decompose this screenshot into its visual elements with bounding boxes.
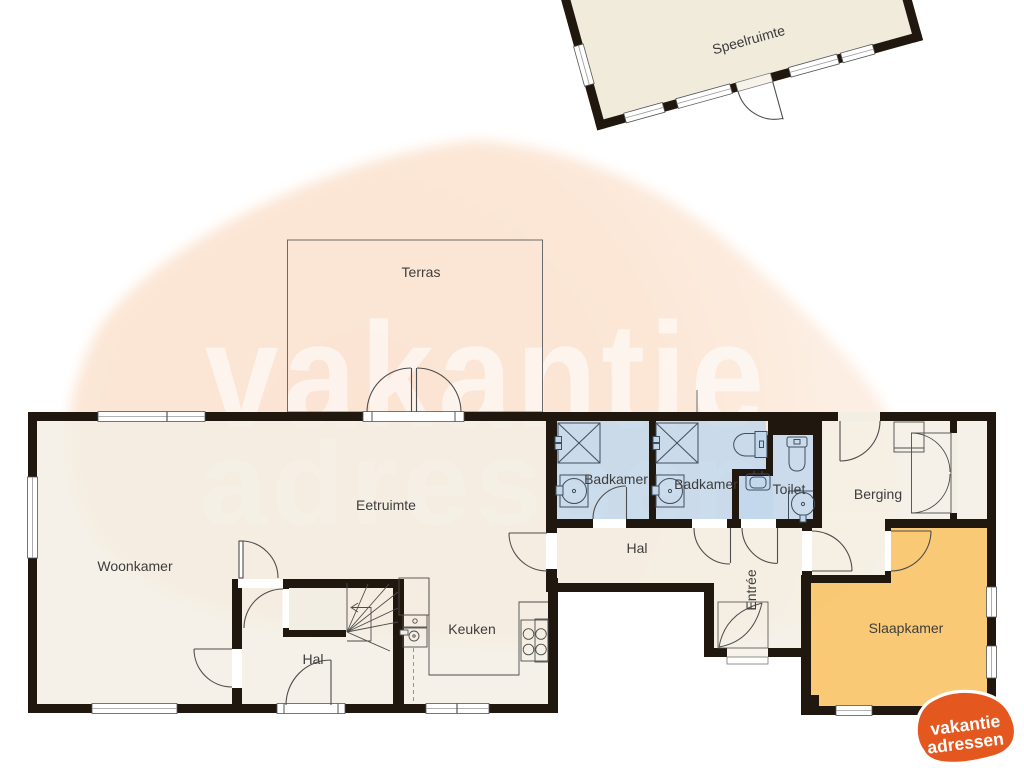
svg-text:Eetruimte: Eetruimte [356, 497, 416, 513]
svg-text:Hal: Hal [626, 540, 647, 556]
svg-text:Berging: Berging [854, 486, 902, 502]
svg-text:Keuken: Keuken [448, 621, 495, 637]
svg-text:Terras: Terras [402, 264, 441, 280]
svg-text:Toilet: Toilet [773, 481, 806, 497]
svg-text:Woonkamer: Woonkamer [97, 558, 173, 574]
svg-text:Badkamer: Badkamer [584, 471, 648, 487]
svg-text:Entrée: Entrée [743, 569, 759, 610]
svg-text:Hal: Hal [302, 651, 323, 667]
svg-text:Badkamer: Badkamer [674, 476, 738, 492]
svg-text:Slaapkamer: Slaapkamer [869, 620, 944, 636]
